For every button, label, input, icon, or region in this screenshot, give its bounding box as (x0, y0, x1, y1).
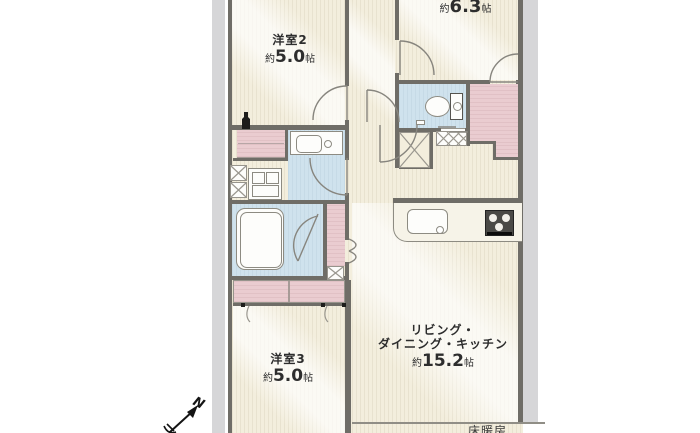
bedroom1-size: 約6.3帖 (413, 0, 518, 18)
ldk-name-line1: リビング・ (363, 324, 523, 338)
bedroom3-size: 約5.0帖 (238, 367, 338, 387)
plan-line-overlay (0, 0, 700, 433)
bedroom1-label: 約6.3帖 (413, 0, 518, 18)
ldk-label: リビング・ ダイニング・キッチン 約15.2帖 (363, 324, 523, 371)
bedroom2-name: 洋室2 (240, 34, 340, 48)
bedroom2-label: 洋室2 約5.0帖 (240, 34, 340, 67)
floor-heating-label: 床暖房 (468, 422, 507, 433)
bedroom3-label: 洋室3 約5.0帖 (238, 353, 338, 386)
ldk-size: 約15.2帖 (363, 352, 523, 372)
bedroom3-name: 洋室3 (238, 353, 338, 367)
ldk-name-line2: ダイニング・キッチン (363, 338, 523, 352)
floorplan: 洋室2 約5.0帖 約6.3帖 リビング・ ダイニング・キッチン 約15.2帖 … (0, 0, 700, 433)
north-arrow-icon (164, 411, 193, 433)
bottle-icon (242, 112, 250, 129)
bedroom2-size: 約5.0帖 (240, 48, 340, 68)
